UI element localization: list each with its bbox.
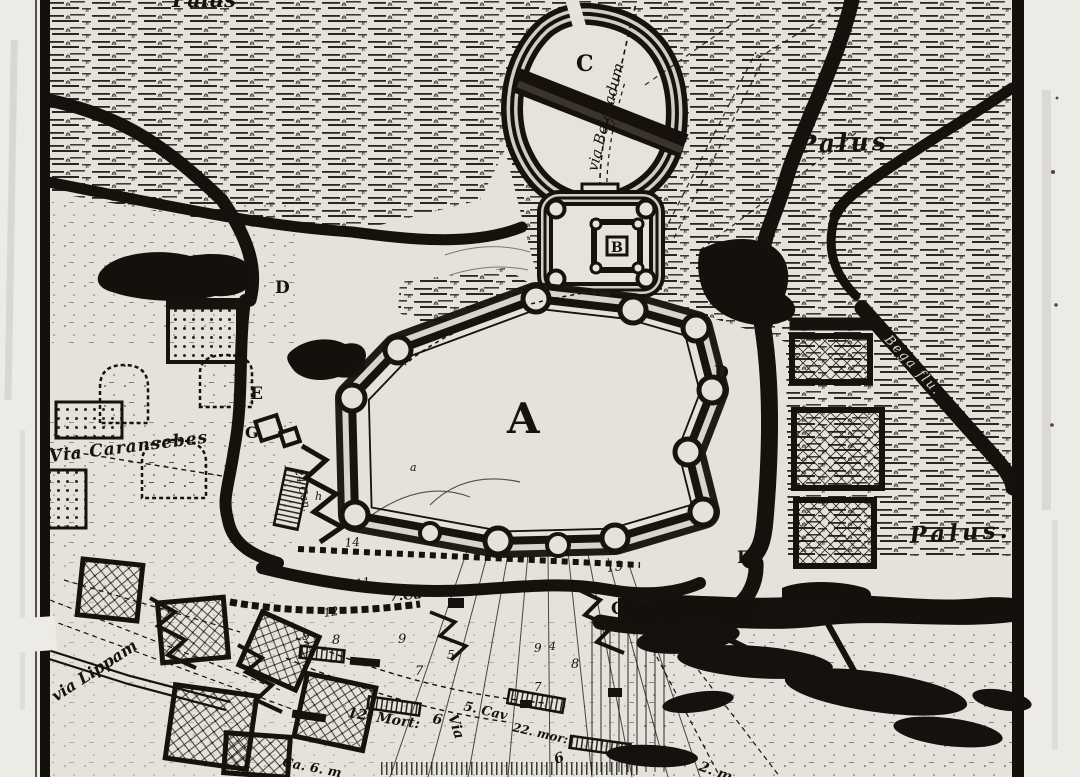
bottom-grass-strip xyxy=(378,762,638,775)
gardens-right xyxy=(790,318,882,566)
label-palus-top: Palus xyxy=(171,0,236,12)
label-n9a: 9 xyxy=(302,629,310,644)
label-n5: 5 xyxy=(447,648,455,662)
north-road-gap xyxy=(572,0,580,28)
label-key-g-west: G xyxy=(245,423,259,442)
label-n9c: 9 xyxy=(534,641,542,655)
label-n13: 13 xyxy=(605,559,623,576)
label-key-d-east: D xyxy=(714,363,729,383)
label-n7b: 7 xyxy=(534,680,542,694)
label-key-e-east: E xyxy=(737,548,750,568)
label-key-a: A xyxy=(506,394,541,443)
label-key-g-trench: G xyxy=(611,599,626,619)
map-canvas: Palus Palus Palus. via Belgradum Via Car… xyxy=(0,0,1080,777)
label-n12: 12 xyxy=(322,604,339,620)
label-key-d-west: D xyxy=(275,278,290,298)
label-palus-northeast: Palus xyxy=(796,127,889,159)
label-small-a: a xyxy=(410,461,417,474)
label-n14: 14 xyxy=(344,535,360,550)
label-n7ca: 7.Ca xyxy=(389,587,423,605)
label-key-c: C xyxy=(576,51,594,77)
engraved-map-page: Palus Palus Palus. via Belgradum Via Car… xyxy=(0,0,1080,777)
label-n11a: 11 xyxy=(354,575,371,591)
label-n4: 4 xyxy=(548,640,556,653)
label-n11b: 11 xyxy=(533,579,548,593)
paper-tear xyxy=(0,616,57,654)
label-key-b: B xyxy=(611,240,623,256)
label-palus-southeast: Palus. xyxy=(908,517,1012,549)
label-n8b: 8 xyxy=(571,657,579,672)
label-n9b: 9 xyxy=(398,632,406,647)
label-small-h: h xyxy=(315,490,322,503)
label-key-e-west: E xyxy=(250,384,263,404)
label-n7a: 7 xyxy=(415,664,424,679)
label-n8a: 8 xyxy=(332,633,340,648)
